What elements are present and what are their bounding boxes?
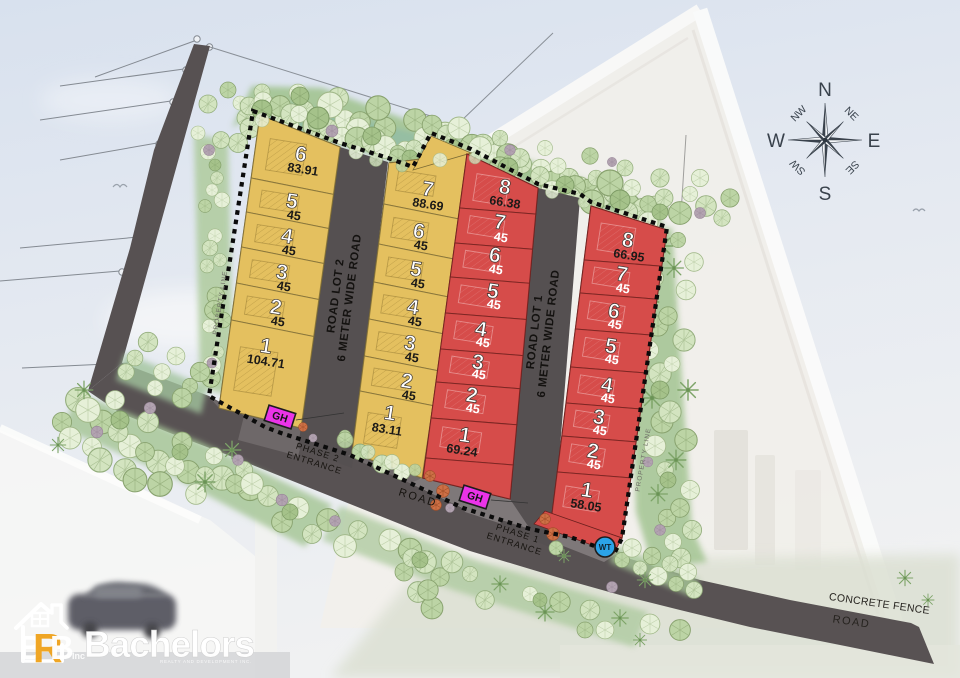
svg-text:45: 45 xyxy=(607,316,623,332)
svg-text:E: E xyxy=(868,131,881,152)
svg-text:45: 45 xyxy=(488,261,504,277)
svg-text:WT: WT xyxy=(599,543,612,552)
svg-text:45: 45 xyxy=(404,349,420,365)
svg-text:45: 45 xyxy=(401,387,417,403)
svg-text:W: W xyxy=(767,131,785,152)
svg-text:45: 45 xyxy=(410,275,426,291)
svg-text:45: 45 xyxy=(592,422,608,438)
svg-text:45: 45 xyxy=(586,456,602,472)
svg-text:45: 45 xyxy=(276,278,292,294)
svg-text:45: 45 xyxy=(407,313,423,329)
svg-text:B: B xyxy=(50,629,74,666)
svg-text:S: S xyxy=(819,184,832,205)
svg-text:45: 45 xyxy=(486,296,502,312)
svg-text:45: 45 xyxy=(270,313,286,329)
svg-text:45: 45 xyxy=(600,390,616,406)
svg-text:45: 45 xyxy=(471,366,487,382)
svg-text:45: 45 xyxy=(286,207,302,223)
svg-text:45: 45 xyxy=(615,280,631,296)
svg-text:45: 45 xyxy=(413,237,429,253)
svg-text:REALTY AND DEVELOPMENT INC.: REALTY AND DEVELOPMENT INC. xyxy=(160,659,252,664)
svg-text:45: 45 xyxy=(604,351,620,367)
svg-text:N: N xyxy=(818,80,832,101)
svg-text:45: 45 xyxy=(475,334,491,350)
svg-text:45: 45 xyxy=(465,400,481,416)
svg-text:45: 45 xyxy=(281,242,297,258)
